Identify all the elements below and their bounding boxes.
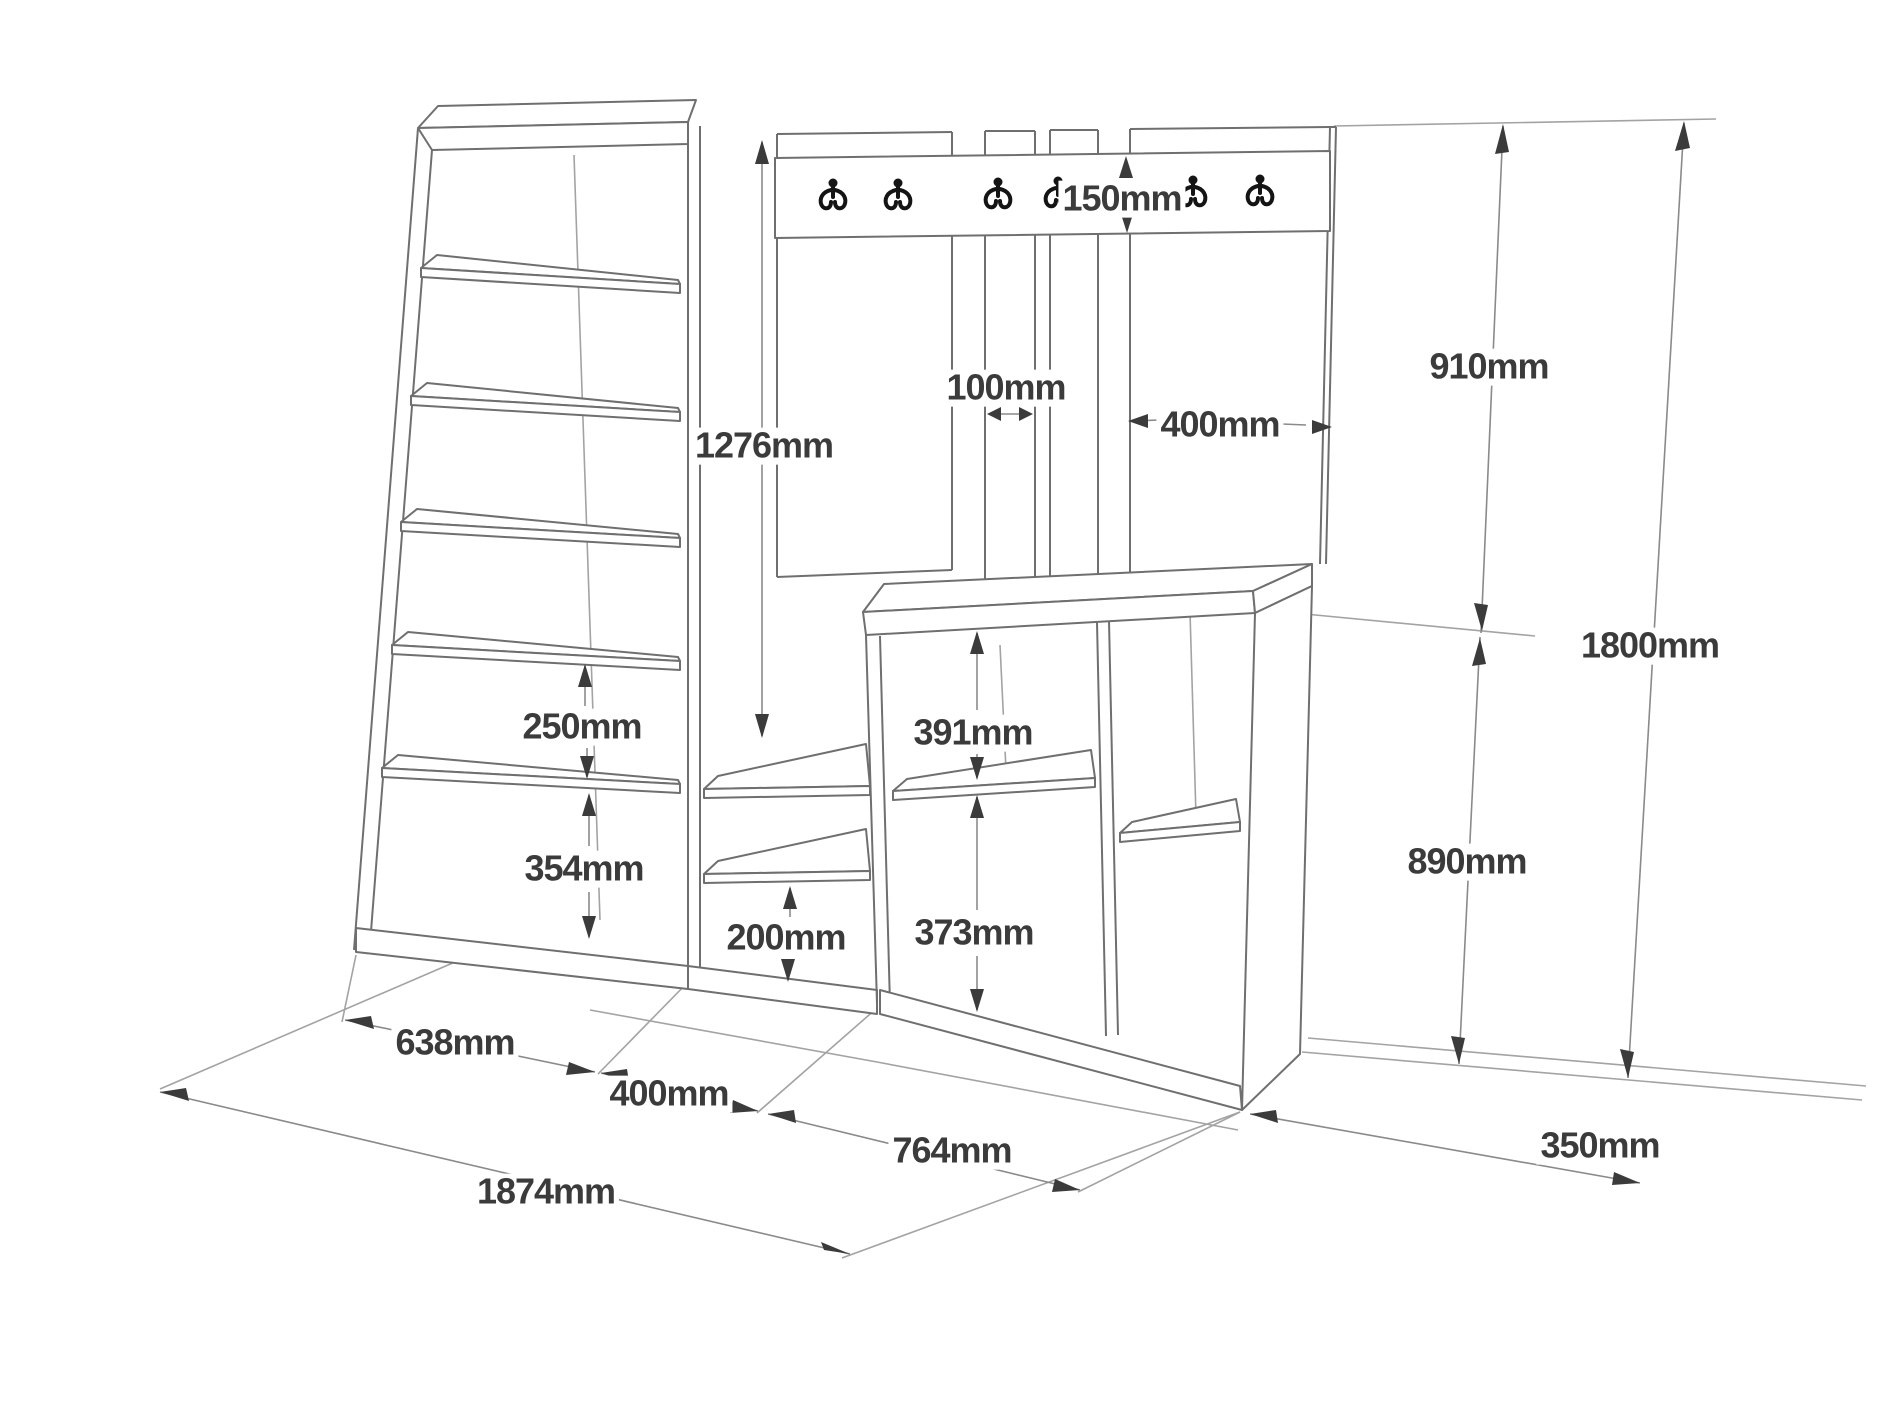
dim-label-rail-height: 150mm bbox=[1058, 181, 1185, 218]
dim-label-back-panel-width: 400mm bbox=[1156, 407, 1283, 444]
dim-label-total-width: 1874mm bbox=[473, 1174, 619, 1211]
bench bbox=[863, 564, 1312, 1110]
dim-label-total-height: 1800mm bbox=[1577, 628, 1723, 665]
wardrobe-section bbox=[688, 744, 877, 1014]
dim-label-depth: 350mm bbox=[1536, 1128, 1663, 1165]
dim-label-lower-section-height: 890mm bbox=[1403, 844, 1530, 881]
floor-lines bbox=[160, 119, 1866, 1258]
drawing-svg bbox=[0, 0, 1894, 1420]
dim-label-slat-width: 100mm bbox=[942, 370, 1069, 407]
dim-label-cabinet-width: 638mm bbox=[391, 1025, 518, 1062]
dim-label-wardrobe-width: 400mm bbox=[605, 1076, 732, 1113]
technical-drawing-canvas: 150mm 100mm 400mm 910mm 1276mm 1800mm 25… bbox=[0, 0, 1894, 1420]
dim-label-shelf-gap-250: 250mm bbox=[518, 709, 645, 746]
dim-label-bench-top-cubby: 391mm bbox=[909, 715, 1036, 752]
dim-label-wardrobe-height: 1276mm bbox=[691, 428, 837, 465]
dim-label-upper-section-height: 910mm bbox=[1425, 349, 1552, 386]
dim-label-shelf-gap-354: 354mm bbox=[520, 851, 647, 888]
dim-label-bench-bottom-cubby: 373mm bbox=[910, 915, 1037, 952]
dim-label-bench-width: 764mm bbox=[888, 1133, 1015, 1170]
dim-label-mid-shelf-gap: 200mm bbox=[722, 920, 849, 957]
